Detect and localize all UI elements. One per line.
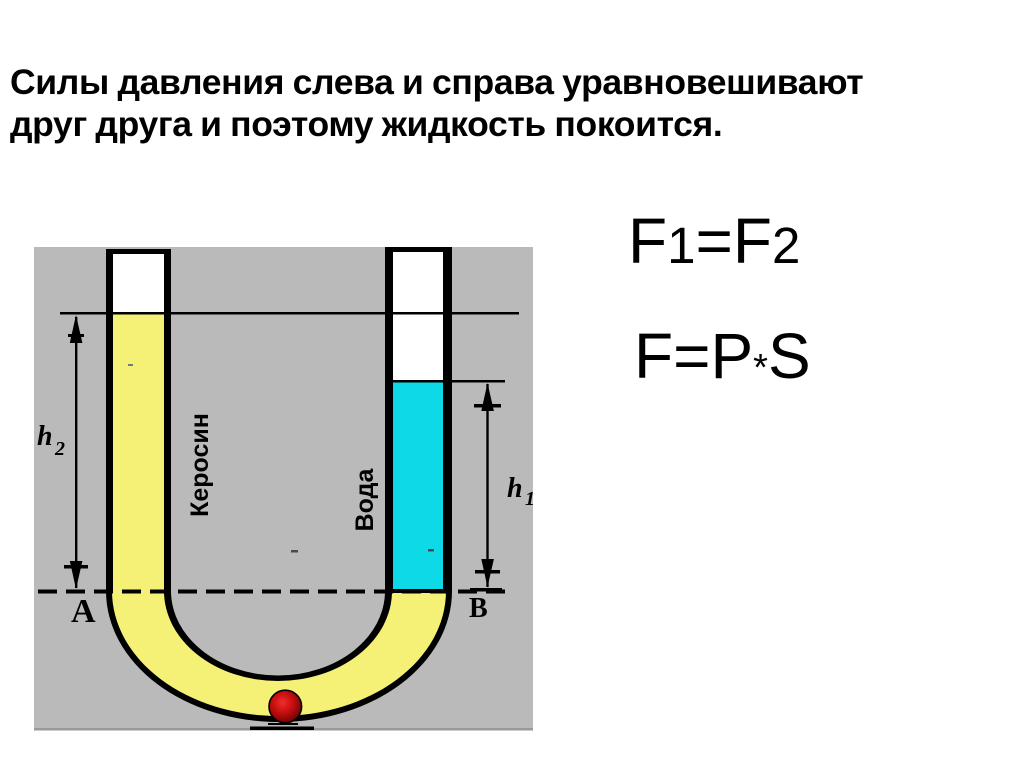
- svg-text:h: h: [507, 473, 523, 504]
- svg-text:Вода: Вода: [351, 468, 379, 532]
- svg-text:Керосин: Керосин: [186, 413, 214, 517]
- svg-text:1: 1: [525, 488, 535, 510]
- svg-text:2: 2: [54, 438, 65, 460]
- svg-text:A: A: [71, 593, 96, 630]
- svg-text:h: h: [37, 421, 53, 452]
- svg-text:B: B: [469, 593, 488, 624]
